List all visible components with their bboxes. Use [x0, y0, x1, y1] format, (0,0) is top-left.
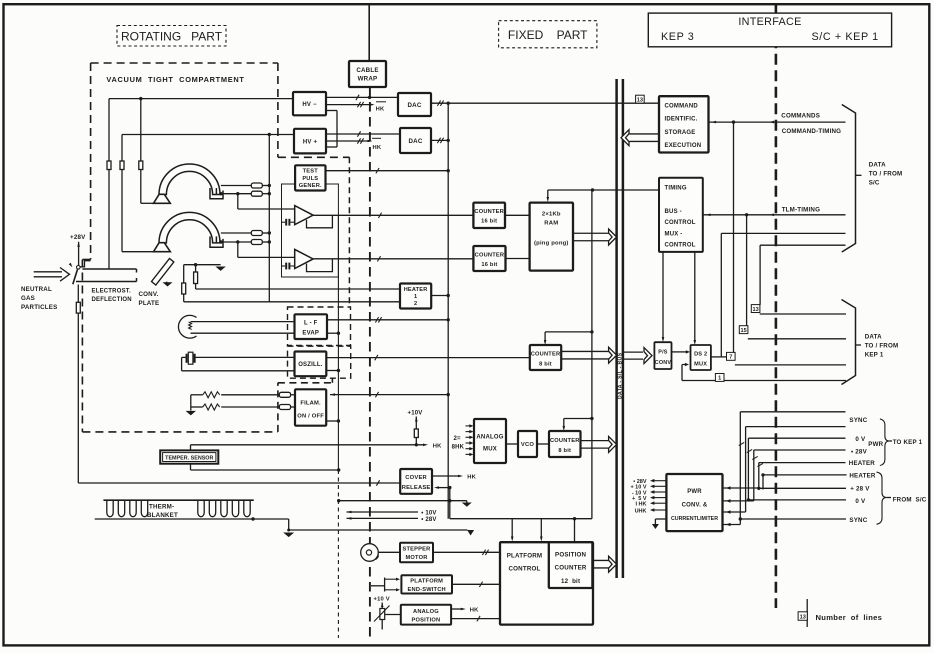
svg-text:BUS -: BUS -	[665, 209, 682, 215]
svg-text:ROTATING PART: ROTATING PART	[121, 30, 223, 44]
svg-text:ANALOG: ANALOG	[413, 609, 439, 615]
svg-text:ANALOG: ANALOG	[476, 434, 503, 440]
svg-text:IDENTIFIC.: IDENTIFIC.	[665, 117, 698, 123]
svg-text:13: 13	[752, 307, 758, 313]
svg-text:S/C + KEP 1: S/C + KEP 1	[811, 31, 878, 43]
svg-text:TO KEP 1: TO KEP 1	[893, 439, 923, 446]
svg-text:12 bit: 12 bit	[561, 578, 580, 585]
svg-text:PWR: PWR	[868, 441, 883, 448]
svg-text:NEUTRAL: NEUTRAL	[21, 286, 52, 293]
svg-text:COUNTER: COUNTER	[474, 209, 504, 215]
svg-text:TEST: TEST	[303, 169, 319, 175]
svg-text:0 V: 0 V	[855, 436, 866, 443]
svg-text:HK: HK	[433, 443, 442, 449]
svg-text:KEP 1: KEP 1	[865, 352, 884, 359]
svg-text:HK: HK	[373, 145, 382, 151]
svg-text:PULS: PULS	[302, 176, 318, 182]
svg-text:• 10V: • 10V	[421, 511, 436, 517]
svg-text:2=: 2=	[454, 436, 462, 442]
svg-text:CURRENTLIMITER: CURRENTLIMITER	[671, 516, 718, 522]
svg-text:+10 V: +10 V	[374, 597, 390, 603]
svg-text:END-SWITCH: END-SWITCH	[408, 587, 446, 593]
svg-text:COUNTER: COUNTER	[555, 565, 587, 572]
svg-text:HK: HK	[376, 107, 385, 113]
svg-text:TO / FROM: TO / FROM	[865, 343, 899, 350]
svg-text:• 28V: • 28V	[851, 449, 868, 456]
svg-text:Number of lines: Number of lines	[816, 613, 883, 622]
svg-text:P/S: P/S	[658, 349, 667, 355]
svg-text:TLM-TIMING: TLM-TIMING	[782, 206, 820, 213]
svg-text:ELECTROST.: ELECTROST.	[92, 289, 131, 295]
svg-text:SYNC: SYNC	[849, 417, 867, 424]
svg-text:16 bit: 16 bit	[481, 262, 497, 268]
svg-text:VCO: VCO	[521, 442, 534, 448]
svg-text:HK: HK	[470, 608, 479, 614]
svg-text:COMMAND-TIMING: COMMAND-TIMING	[782, 128, 842, 135]
svg-text:STORAGE: STORAGE	[665, 130, 696, 136]
svg-text:FILAM.: FILAM.	[300, 401, 321, 407]
svg-text:THERM-: THERM-	[149, 504, 174, 511]
svg-text:HEATER: HEATER	[849, 460, 876, 467]
svg-text:2: 2	[414, 301, 417, 307]
svg-text:13: 13	[637, 97, 643, 103]
svg-text:EXECUTION: EXECUTION	[665, 143, 702, 149]
svg-text:2×1Kb: 2×1Kb	[542, 212, 561, 218]
svg-text:I HK: I HK	[636, 502, 647, 508]
svg-text:WRAP: WRAP	[358, 76, 378, 83]
svg-text:PLATFORM: PLATFORM	[507, 553, 543, 560]
svg-text:SYNC: SYNC	[849, 517, 867, 524]
svg-text:COUNTER: COUNTER	[550, 438, 580, 444]
svg-text:S/C: S/C	[869, 180, 880, 187]
svg-text:DATA - S/L - BUS: DATA - S/L - BUS	[618, 352, 624, 399]
svg-text:+10V: +10V	[408, 411, 423, 417]
svg-text:FROM S/C: FROM S/C	[893, 497, 927, 504]
svg-text:STEPPER: STEPPER	[403, 547, 431, 553]
svg-text:DAC: DAC	[408, 138, 422, 145]
svg-text:• 28V: • 28V	[421, 517, 436, 523]
svg-text:0 V: 0 V	[855, 498, 866, 505]
svg-text:HEATER: HEATER	[849, 473, 876, 480]
svg-text:MUX: MUX	[694, 361, 707, 367]
svg-text:EVAP: EVAP	[302, 330, 319, 336]
svg-text:+ 28 V: + 28 V	[850, 486, 870, 493]
svg-text:ON / OFF: ON / OFF	[297, 414, 324, 420]
svg-text:BLANKET: BLANKET	[147, 512, 178, 519]
svg-text:OSZILL.: OSZILL.	[298, 362, 323, 368]
svg-text:PARTICLES: PARTICLES	[21, 304, 57, 311]
svg-text:CONV: CONV	[655, 360, 672, 366]
svg-text:CONV.: CONV.	[139, 291, 159, 298]
svg-text:FIXED PART: FIXED PART	[508, 28, 588, 42]
svg-text:7: 7	[729, 355, 732, 361]
svg-text:UHK: UHK	[635, 508, 647, 514]
svg-text:COVER: COVER	[405, 475, 427, 481]
svg-text:DATA: DATA	[865, 334, 882, 341]
svg-text:RELEASE: RELEASE	[402, 485, 431, 491]
svg-text:INTERFACE: INTERFACE	[738, 16, 801, 28]
svg-text:POSITION: POSITION	[412, 617, 441, 623]
svg-text:COMMANDS: COMMANDS	[781, 113, 820, 120]
svg-text:CABLE: CABLE	[356, 67, 378, 74]
svg-text:PWR: PWR	[687, 489, 702, 495]
svg-text:COMMAND: COMMAND	[665, 104, 699, 110]
svg-text:DATA: DATA	[869, 162, 886, 169]
svg-text:PLATFORM: PLATFORM	[410, 579, 443, 585]
svg-text:8 bit: 8 bit	[558, 448, 571, 454]
svg-text:1: 1	[718, 376, 721, 382]
svg-text:PLATE: PLATE	[139, 300, 160, 307]
svg-text:HV −: HV −	[302, 102, 317, 108]
svg-text:+28V: +28V	[70, 234, 86, 241]
svg-text:COUNTER: COUNTER	[475, 252, 505, 258]
svg-text:13: 13	[800, 614, 806, 620]
svg-text:COUNTER: COUNTER	[531, 351, 561, 357]
svg-text:8HK: 8HK	[452, 445, 465, 451]
svg-text:L - F: L - F	[304, 320, 318, 326]
svg-text:CONTROL: CONTROL	[509, 566, 541, 573]
svg-text:TIMING: TIMING	[665, 186, 687, 192]
svg-text:16 bit: 16 bit	[481, 219, 497, 225]
svg-text:MOTOR: MOTOR	[405, 555, 427, 561]
svg-text:CONTROL: CONTROL	[665, 220, 696, 226]
svg-text:TEMPER. SENSOR: TEMPER. SENSOR	[165, 456, 213, 462]
svg-text:GENER.: GENER.	[299, 183, 322, 189]
svg-text:DAC: DAC	[407, 102, 421, 109]
svg-text:CONV. &: CONV. &	[682, 503, 708, 509]
svg-text:HV +: HV +	[303, 139, 318, 145]
svg-text:15: 15	[740, 328, 746, 334]
svg-text:RAM: RAM	[544, 221, 558, 227]
svg-text:POSITION: POSITION	[555, 552, 586, 559]
svg-text:GAS: GAS	[21, 295, 35, 302]
svg-text:DS 2: DS 2	[694, 351, 707, 357]
svg-text:VACUUM TIGHT COMPARTMENT: VACUUM TIGHT COMPARTMENT	[106, 75, 244, 84]
svg-text:MUX -: MUX -	[665, 231, 683, 237]
svg-text:TO / FROM: TO / FROM	[869, 171, 903, 178]
svg-text:CONTROL: CONTROL	[665, 243, 696, 249]
svg-text:KEP 3: KEP 3	[661, 31, 694, 43]
svg-text:1: 1	[414, 294, 417, 300]
svg-text:8 bit: 8 bit	[539, 361, 552, 367]
svg-text:HK: HK	[467, 475, 476, 481]
svg-text:(ping pong): (ping pong)	[534, 241, 569, 247]
svg-text:DEFLECTION: DEFLECTION	[92, 297, 132, 303]
svg-text:MUX: MUX	[483, 446, 497, 452]
svg-text:HEATER: HEATER	[404, 287, 428, 293]
